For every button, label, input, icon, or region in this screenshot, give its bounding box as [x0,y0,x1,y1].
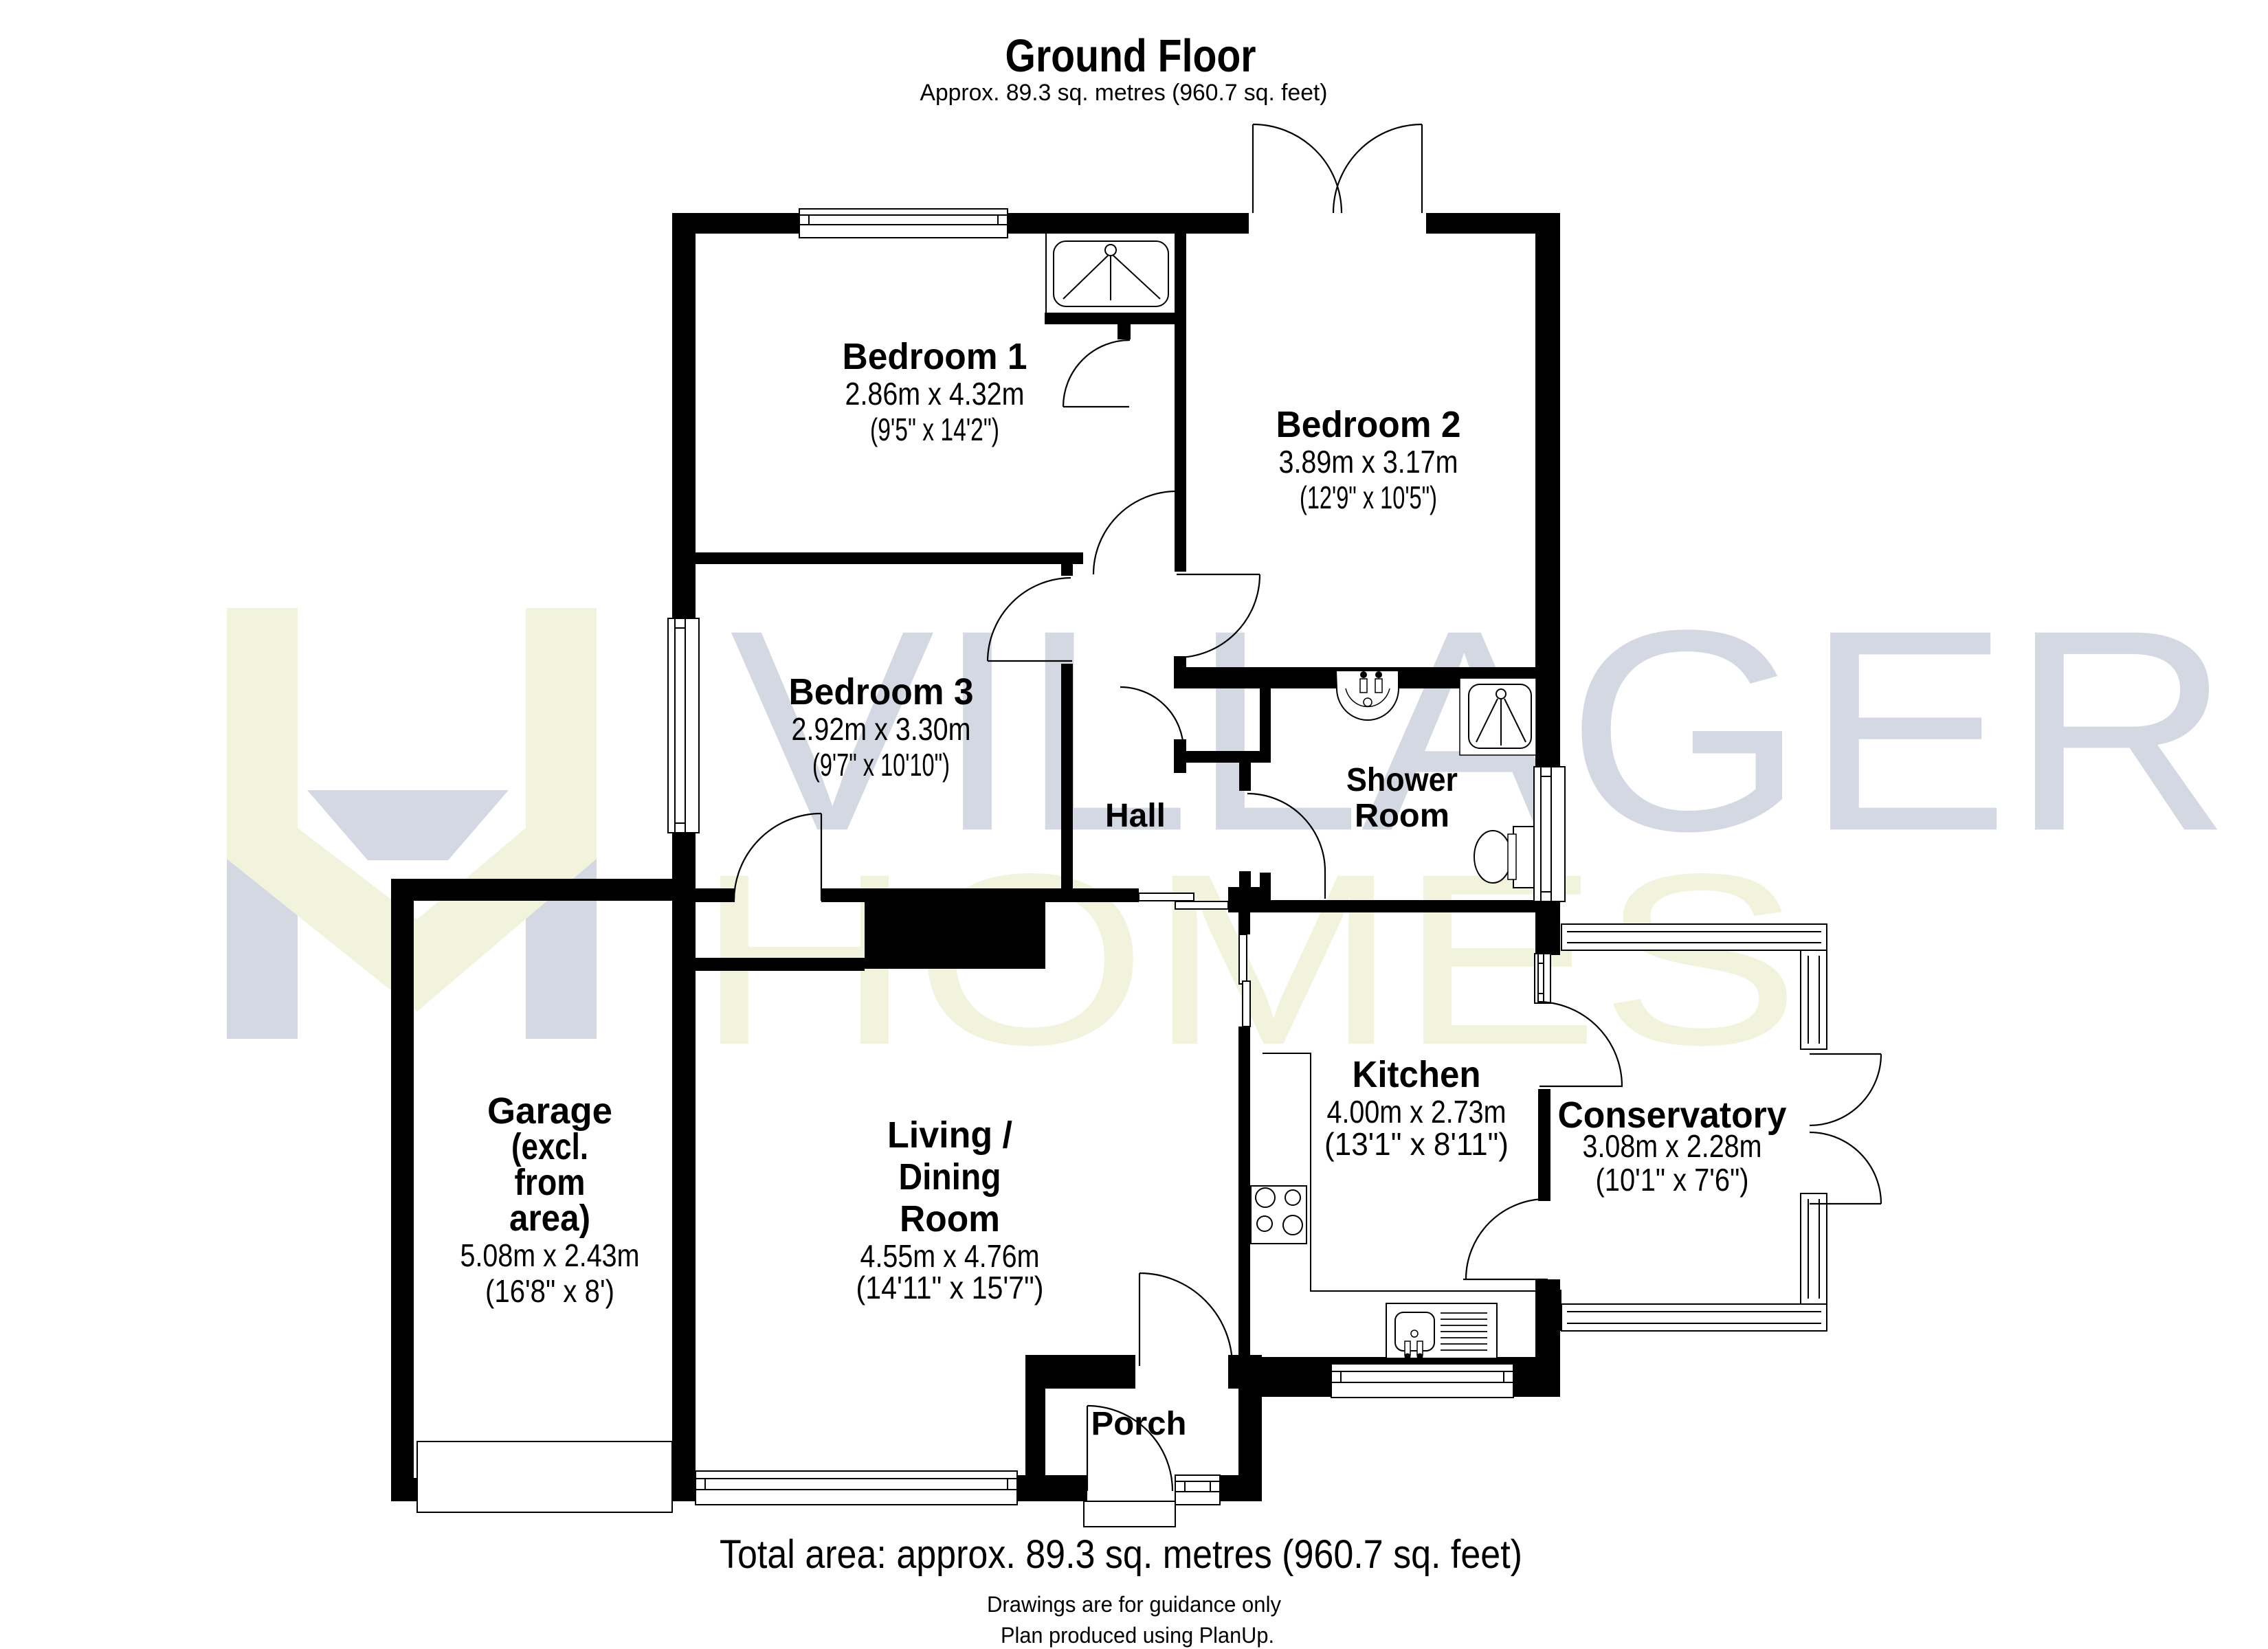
svg-text:Porch: Porch [1091,1406,1187,1442]
svg-text:from: from [515,1162,586,1203]
svg-text:Living /: Living / [887,1114,1012,1156]
svg-text:Bedroom 2: Bedroom 2 [1276,404,1461,445]
svg-text:Room: Room [1355,798,1449,834]
svg-text:(excl.: (excl. [511,1126,588,1167]
svg-text:4.55m x 4.76m: 4.55m x 4.76m [860,1238,1040,1274]
svg-text:5.08m x 2.43m: 5.08m x 2.43m [460,1237,640,1273]
svg-text:3.08m x 2.28m: 3.08m x 2.28m [1583,1128,1762,1164]
svg-text:Kitchen: Kitchen [1353,1054,1481,1095]
svg-text:2.86m x 4.32m: 2.86m x 4.32m [845,376,1025,412]
svg-text:3.89m x 3.17m: 3.89m x 3.17m [1279,444,1458,480]
svg-text:area): area) [509,1198,590,1239]
svg-text:(16'8" x 8'): (16'8" x 8') [485,1273,614,1309]
svg-text:Plan produced using PlanUp.: Plan produced using PlanUp. [1001,1623,1274,1648]
svg-text:Room: Room [900,1198,1000,1239]
svg-text:Dining: Dining [899,1156,1001,1198]
svg-text:(14'11" x 15'7"): (14'11" x 15'7") [856,1270,1044,1305]
svg-text:Garage: Garage [487,1090,612,1132]
svg-text:Ground Floor: Ground Floor [1005,30,1256,82]
svg-text:4.00m x 2.73m: 4.00m x 2.73m [1327,1094,1507,1130]
svg-text:Shower: Shower [1346,762,1458,798]
svg-text:2.92m x 3.30m: 2.92m x 3.30m [792,711,971,747]
svg-text:(9'7" x 10'10"): (9'7" x 10'10") [812,747,950,783]
svg-text:Bedroom 3: Bedroom 3 [789,671,974,713]
svg-text:Drawings are for guidance only: Drawings are for guidance only [987,1592,1281,1617]
svg-text:(10'1" x 7'6"): (10'1" x 7'6") [1596,1162,1749,1198]
svg-text:(13'1" x 8'11"): (13'1" x 8'11") [1324,1126,1509,1162]
svg-text:(12'9" x 10'5"): (12'9" x 10'5") [1300,480,1437,515]
svg-text:Approx. 89.3 sq. metres (960.7: Approx. 89.3 sq. metres (960.7 sq. feet) [920,80,1328,106]
svg-text:Hall: Hall [1105,798,1166,834]
svg-text:Bedroom 1: Bedroom 1 [843,336,1027,377]
svg-text:(9'5" x 14'2"): (9'5" x 14'2") [870,412,999,447]
svg-text:Total area: approx. 89.3 sq. m: Total area: approx. 89.3 sq. metres (960… [720,1532,1522,1577]
